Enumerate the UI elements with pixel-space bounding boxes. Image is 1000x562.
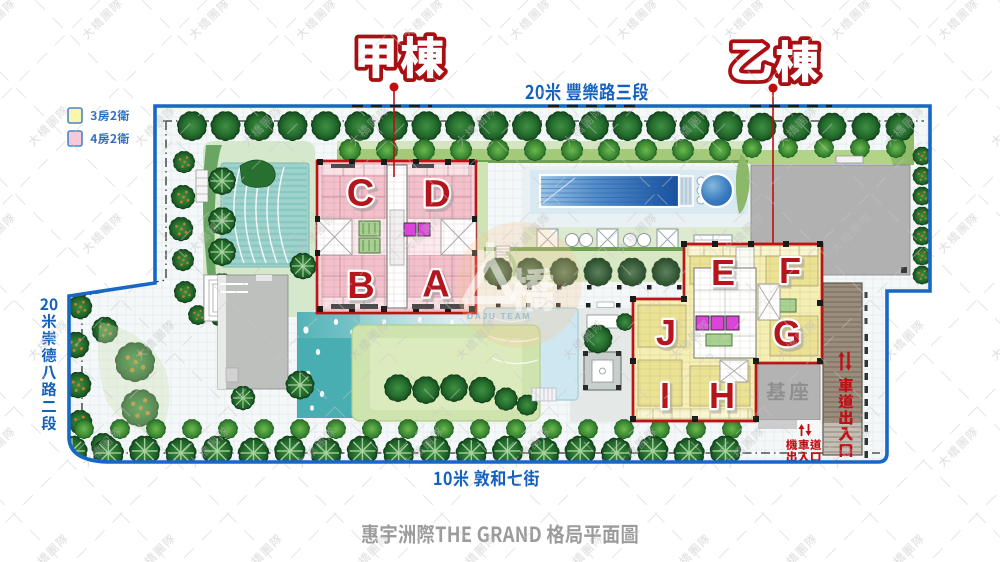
svg-text:I: I	[660, 375, 670, 416]
svg-text:DAJU TEAM: DAJU TEAM	[467, 311, 531, 321]
svg-text:H: H	[709, 375, 735, 416]
svg-text:B: B	[347, 265, 374, 307]
svg-text:F: F	[779, 250, 801, 291]
svg-text:D: D	[423, 174, 450, 216]
svg-text:C: C	[347, 173, 374, 215]
svg-text:J: J	[656, 312, 676, 353]
svg-text:E: E	[711, 252, 735, 293]
